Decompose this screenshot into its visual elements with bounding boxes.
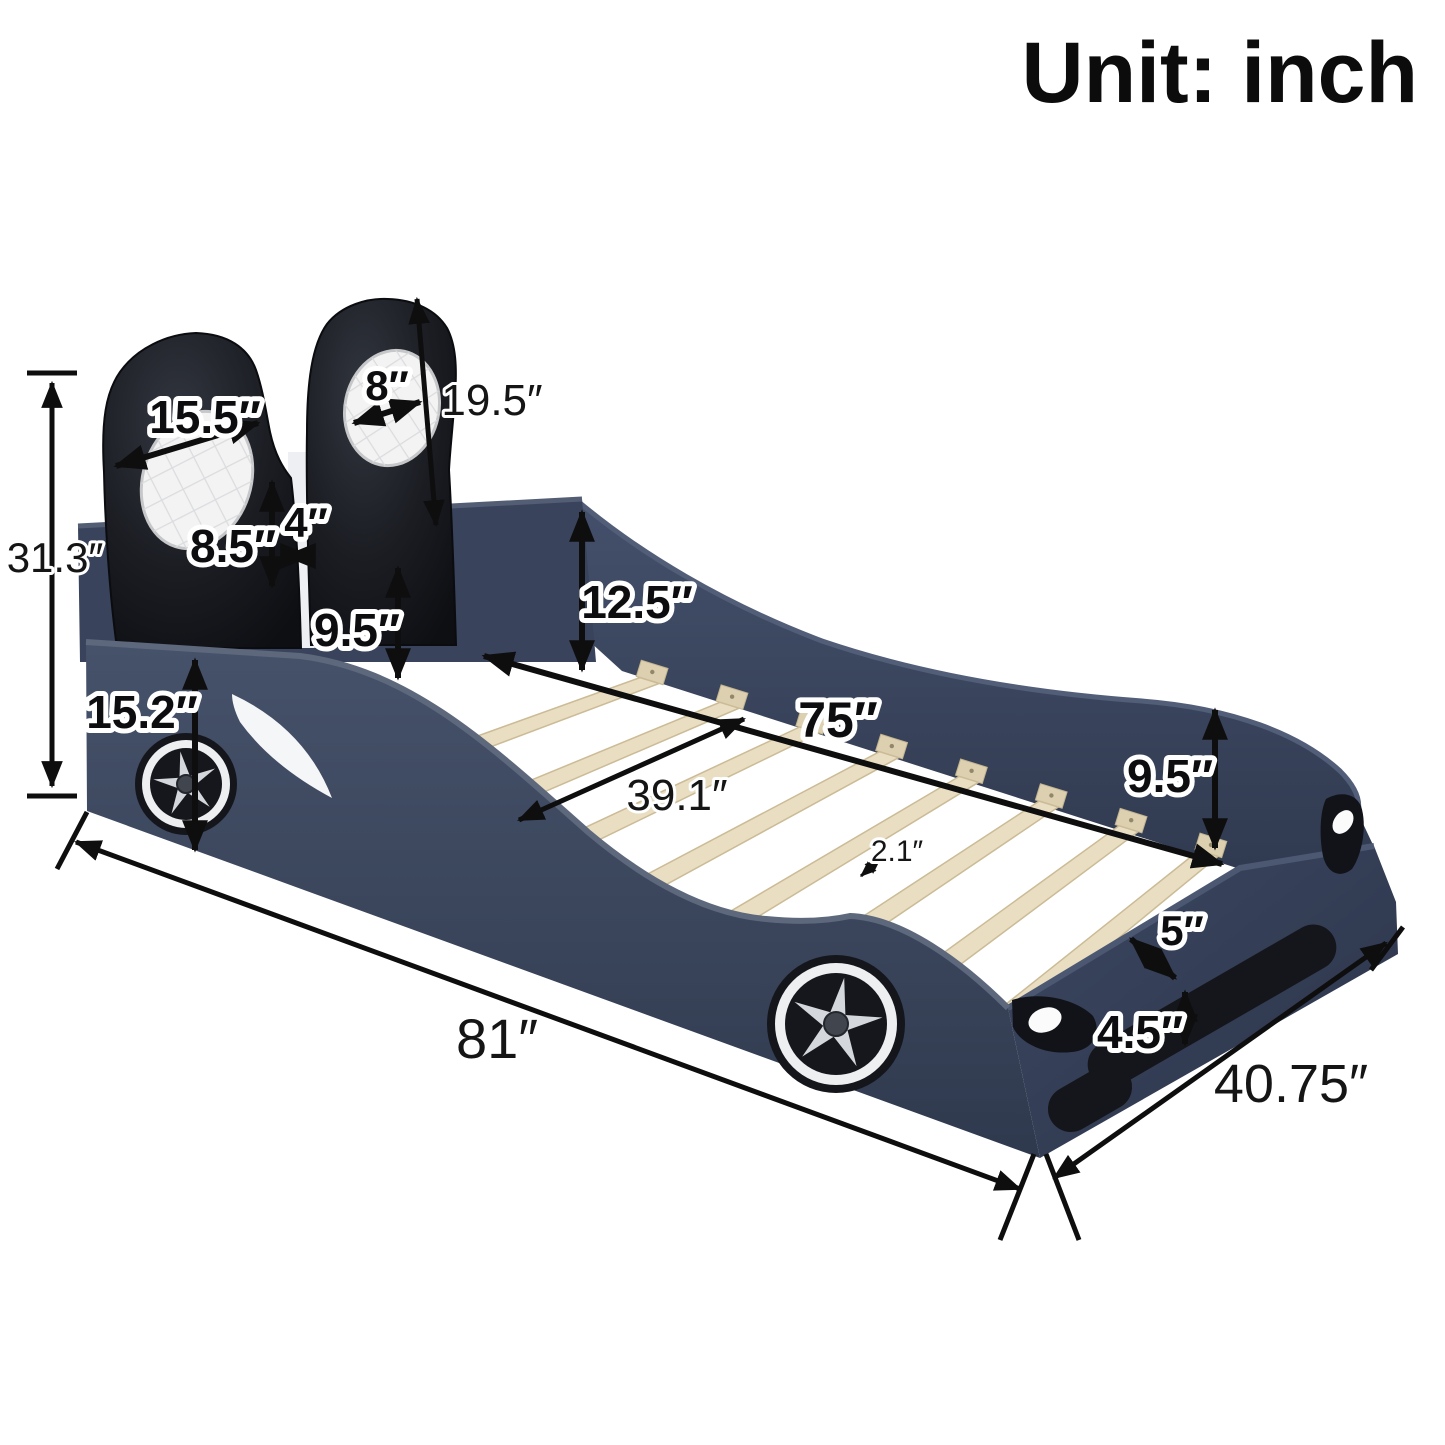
block-screw-dot (1049, 793, 1053, 797)
block-screw-dot (1129, 818, 1133, 822)
dim-label-headrest-height: 19.5″ (441, 376, 542, 425)
block-screw-dot (890, 744, 894, 748)
dim-label-slat-area-length: 75″ (798, 692, 878, 748)
dim-label-total-length: 81″ (456, 1007, 538, 1070)
dim-label-inner-width: 39.1″ (626, 771, 727, 820)
dim-label-front-panel-height: 15.2″ (86, 686, 198, 738)
dim-label-slat-width: 2.1″ (871, 835, 924, 868)
dim-tick-total-width-start (1046, 1154, 1079, 1240)
dim-tick-total-length-start (57, 812, 87, 869)
unit-label: Unit: inch (1022, 25, 1419, 121)
dim-label-headrest-gap: 4″ (284, 499, 327, 546)
block-screw-dot (650, 670, 654, 674)
dim-label-side-rail-height: 12.5″ (581, 576, 693, 628)
rear-wheel-hub (824, 1012, 848, 1036)
dimension-diagram: 31.3″ 15.5″ 8″ 19.5″ 8.5″ 4″ 9.5″ 12.5″ … (0, 0, 1445, 1445)
dim-tick-total-length-end (1000, 1154, 1034, 1240)
rear-wheel (767, 955, 905, 1093)
dim-label-tail-ledge: 5″ (1160, 907, 1203, 954)
dim-label-headboard-rail-height: 9.5″ (314, 604, 400, 656)
dim-label-headrest-width: 15.5″ (149, 391, 261, 443)
front-wheel (135, 733, 237, 835)
dim-label-total-height: 31.3″ (7, 534, 104, 581)
car-bed-diagram-canvas: 31.3″ 15.5″ 8″ 19.5″ 8.5″ 4″ 9.5″ 12.5″ … (0, 0, 1445, 1445)
dim-label-headrest-pad-width: 8″ (365, 362, 408, 409)
block-screw-dot (969, 769, 973, 773)
dim-label-headrest-lower-height: 8.5″ (190, 520, 276, 572)
dim-label-total-width: 40.75″ (1214, 1054, 1368, 1114)
dim-label-footboard-height: 4.5″ (1097, 1006, 1183, 1058)
dim-label-tail-rail-height: 9.5″ (1127, 750, 1213, 802)
block-screw-dot (730, 695, 734, 699)
